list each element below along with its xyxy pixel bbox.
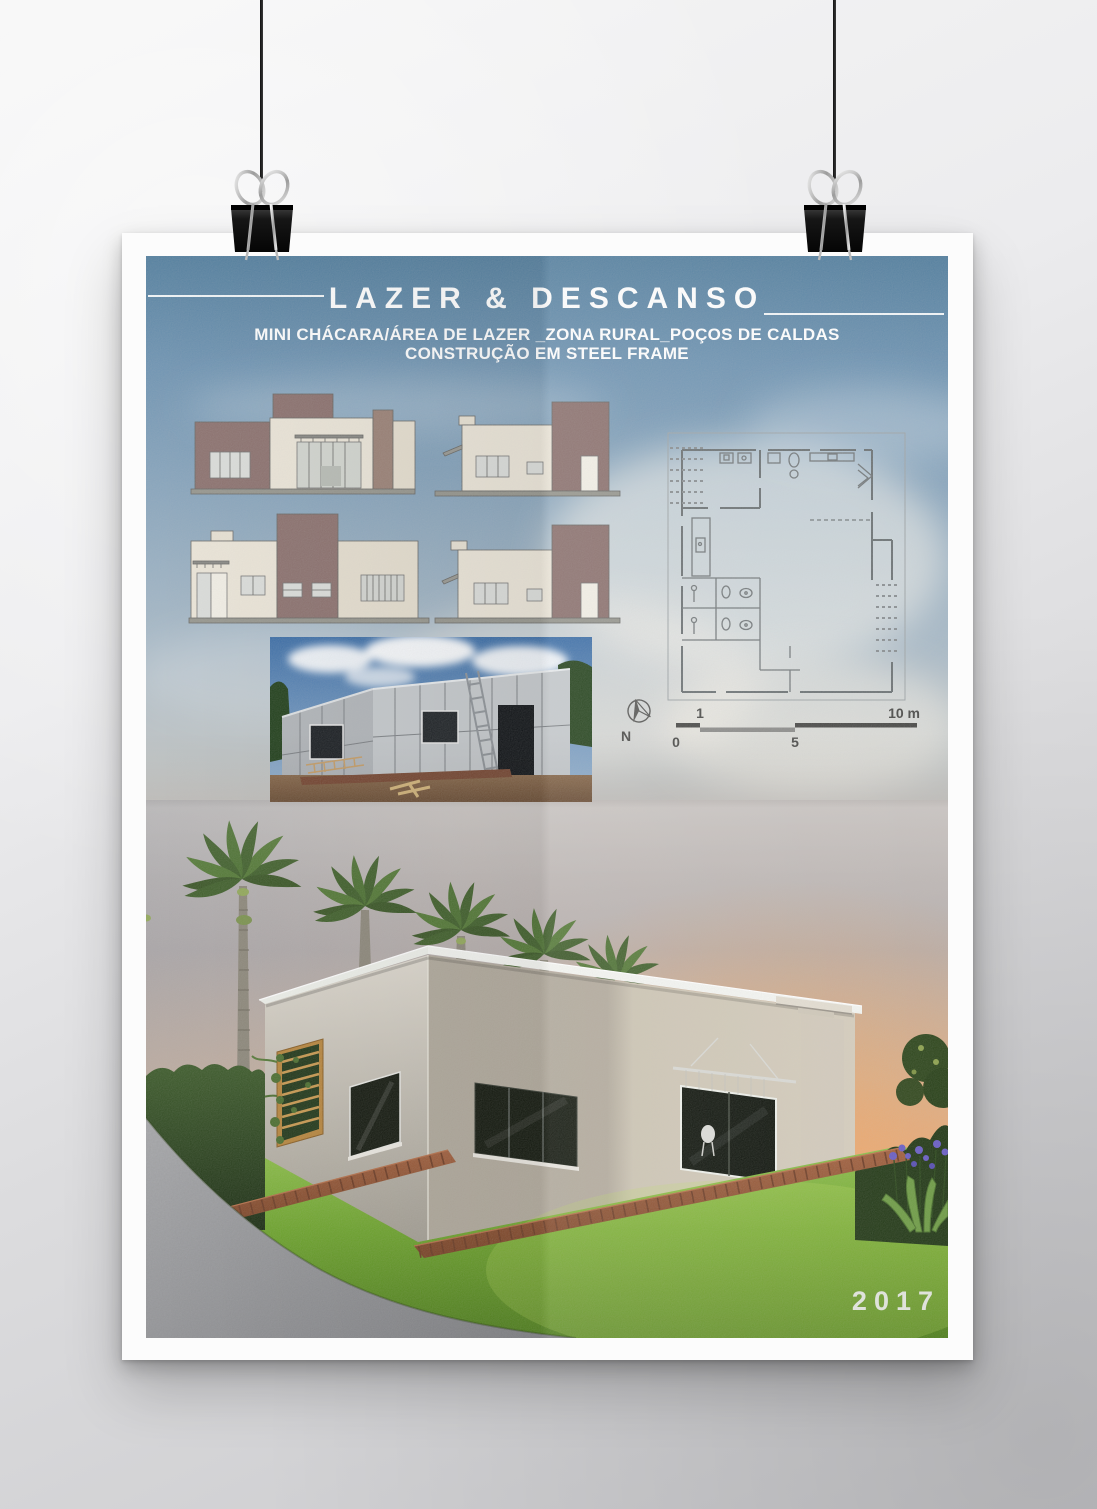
- left-face-window: [348, 1072, 402, 1161]
- clip-body: [231, 208, 293, 252]
- construction-photo: [270, 637, 592, 802]
- north-arrow-icon: [625, 696, 653, 725]
- scale-label-0: 0: [672, 734, 680, 750]
- scale-label-10m: 10 m: [888, 705, 920, 721]
- clip-wire: [231, 167, 293, 209]
- poster-subtitle-2: CONSTRUÇÃO EM STEEL FRAME: [146, 344, 948, 364]
- clip-wire: [804, 167, 866, 209]
- poster-artwork: LAZER & DESCANSO MINI CHÁCARA/ÁREA DE LA…: [146, 256, 948, 1338]
- floor-plan-drawing: [660, 430, 912, 706]
- elevation-side-top: [435, 402, 620, 496]
- binder-clip-icon: [217, 150, 307, 266]
- elevation-drawings: [185, 390, 630, 630]
- poster-mockup-scene: LAZER & DESCANSO MINI CHÁCARA/ÁREA DE LA…: [0, 0, 1097, 1509]
- plan-interior: [682, 453, 872, 692]
- compass-label: N: [621, 728, 631, 744]
- elevation-front-top: [191, 394, 415, 494]
- binder-clip-icon: [790, 150, 880, 266]
- clip-body: [804, 208, 866, 252]
- elevation-side-bottom: [435, 525, 620, 623]
- render-scene: [146, 800, 948, 1338]
- scale-label-1: 1: [696, 705, 704, 721]
- project-year: 2017: [852, 1286, 940, 1317]
- poster-title: LAZER & DESCANSO: [146, 282, 948, 316]
- elevation-front-bottom: [189, 514, 429, 623]
- architecture-poster: LAZER & DESCANSO MINI CHÁCARA/ÁREA DE LA…: [122, 233, 973, 1360]
- front-face-window: [473, 1083, 579, 1171]
- chair-silhouette: [701, 1125, 715, 1143]
- poster-subtitle-1: MINI CHÁCARA/ÁREA DE LAZER _ZONA RURAL_P…: [146, 325, 948, 345]
- scale-label-5: 5: [791, 734, 799, 750]
- plan-key: N 1 10 m 0 5: [615, 695, 945, 760]
- glass-door: [681, 1086, 776, 1182]
- scale-bar: 1 10 m 0 5: [672, 705, 920, 750]
